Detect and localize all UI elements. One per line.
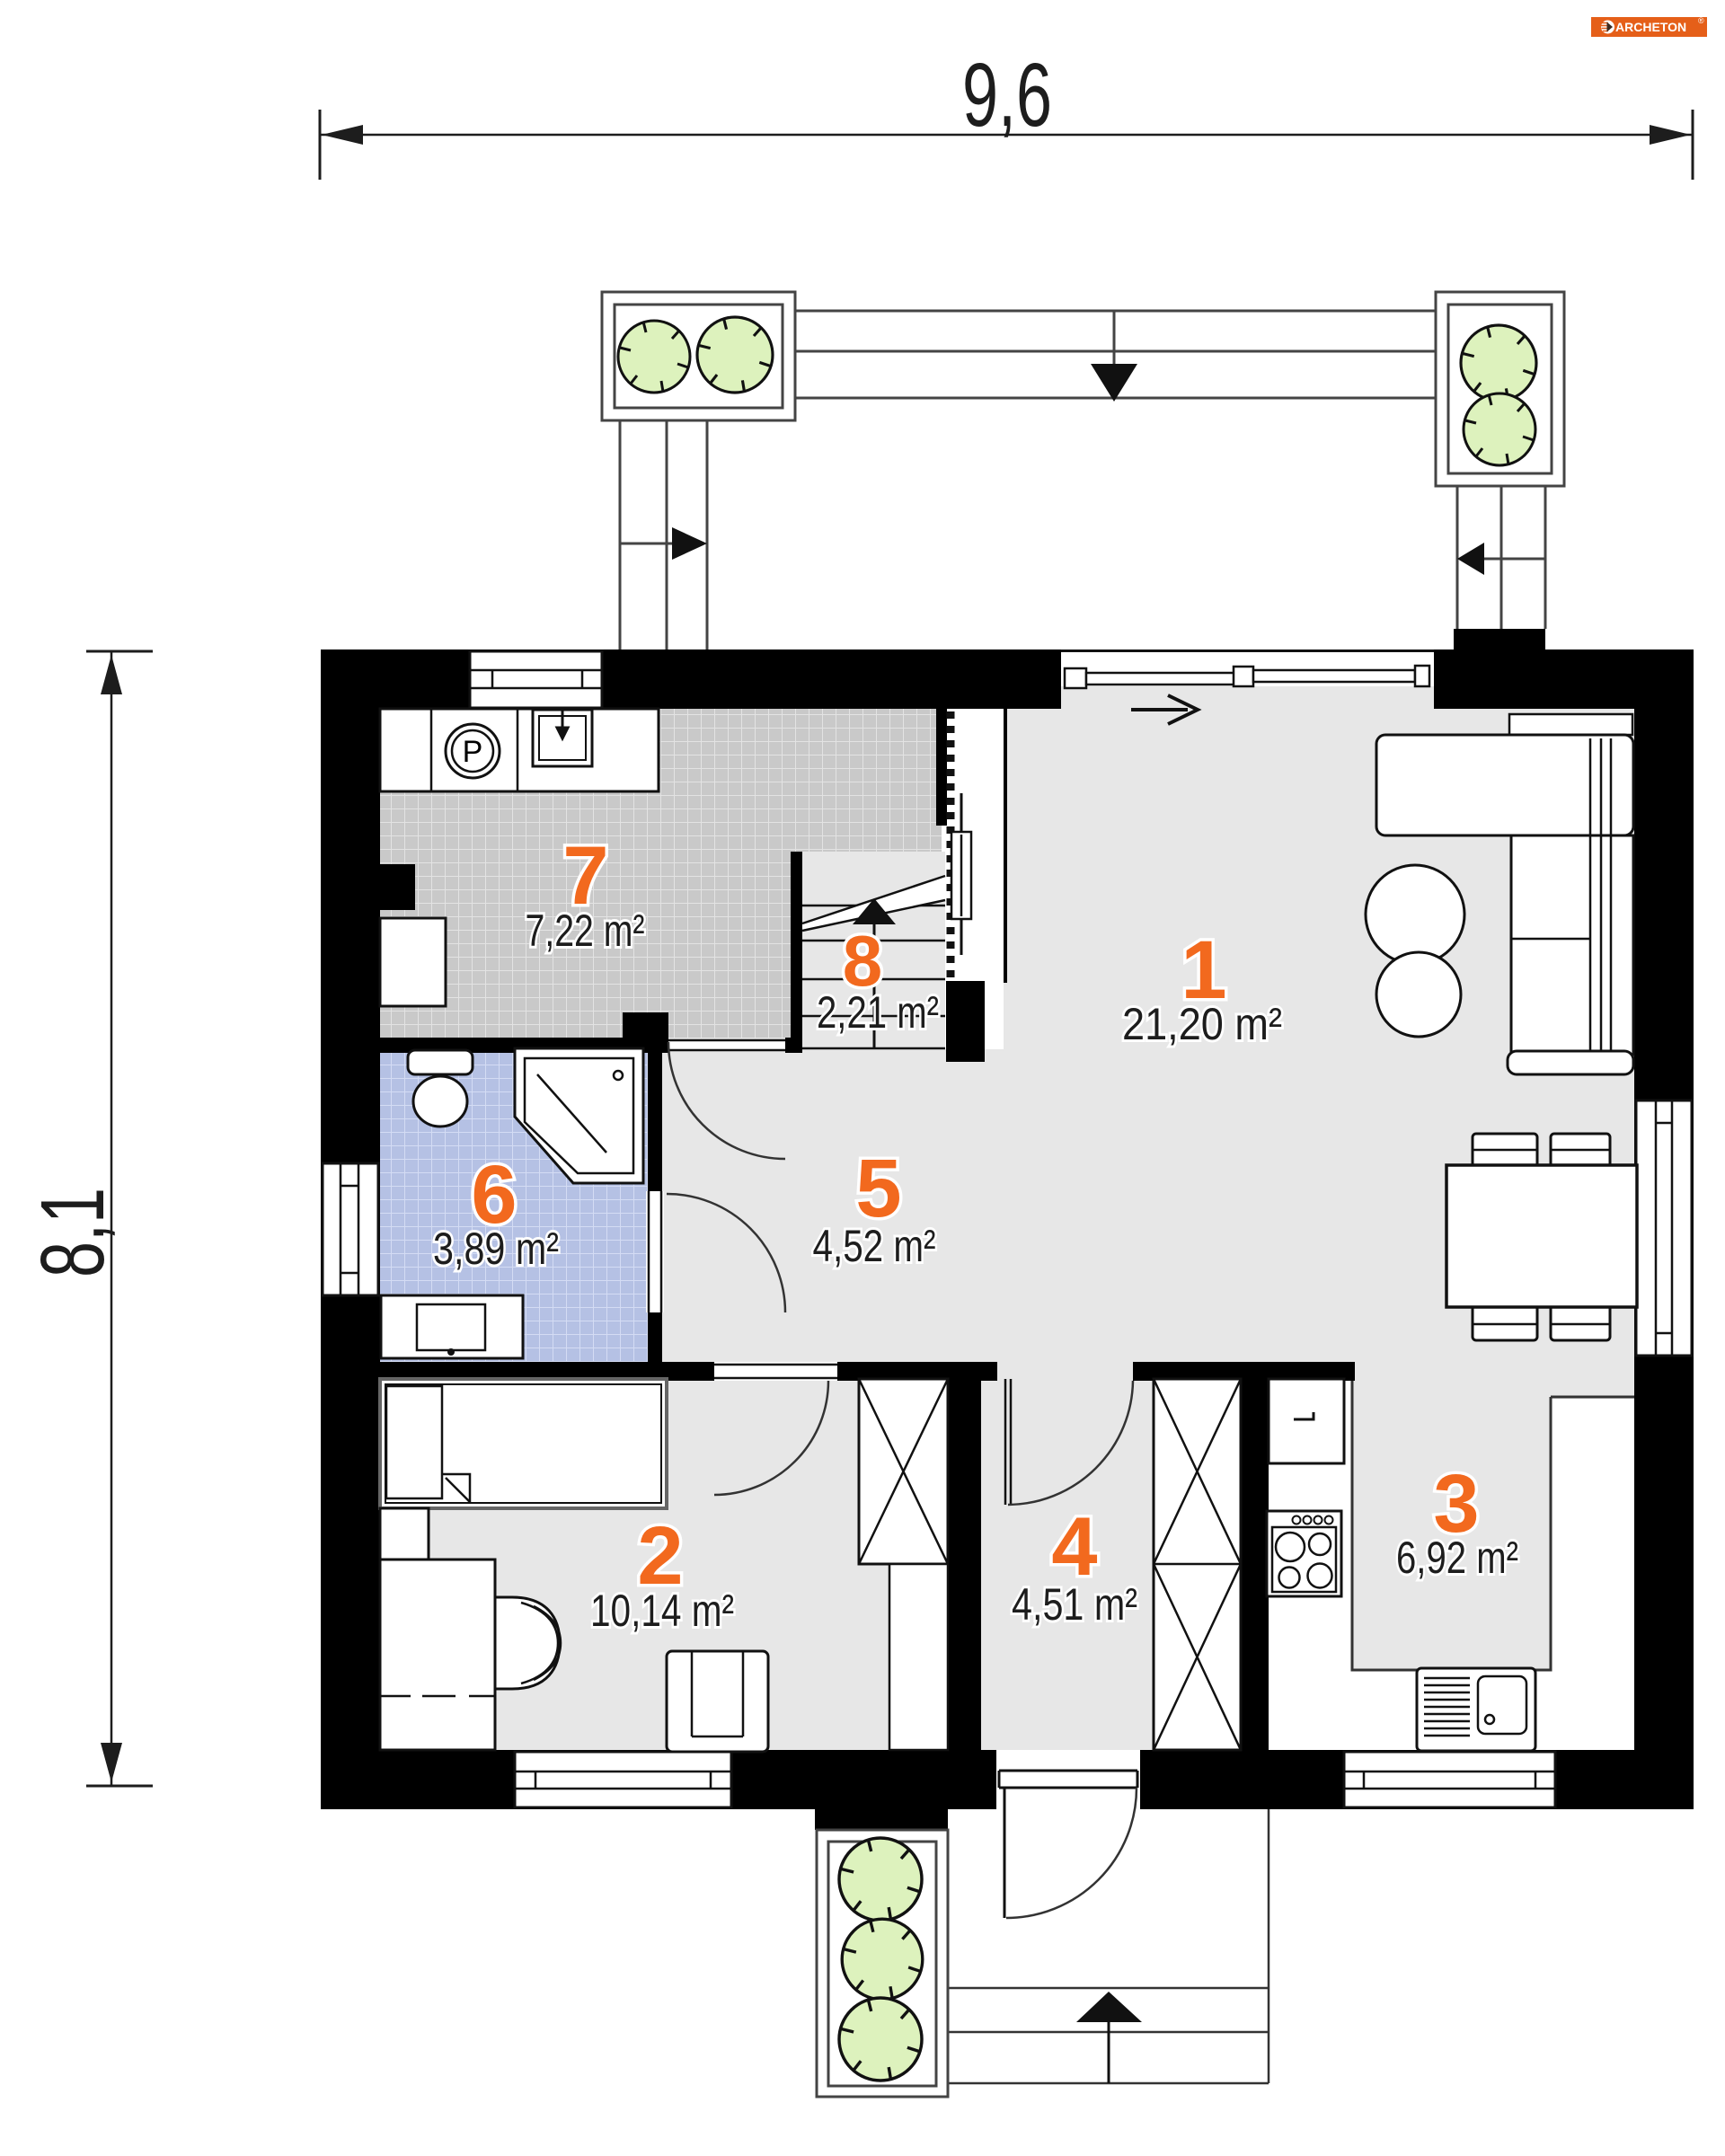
svg-text:P: P <box>463 735 483 769</box>
svg-text:8,1: 8,1 <box>22 1188 123 1277</box>
svg-text:3,89 m²: 3,89 m² <box>433 1224 559 1274</box>
svg-text:4,51 m²: 4,51 m² <box>1012 1579 1137 1630</box>
svg-text:6,92 m²: 6,92 m² <box>1396 1533 1518 1583</box>
svg-text:4,52 m²: 4,52 m² <box>813 1221 936 1271</box>
svg-text:10,14 m²: 10,14 m² <box>590 1586 734 1636</box>
svg-text:®: ® <box>1698 16 1704 25</box>
svg-text:2,21 m²: 2,21 m² <box>817 987 939 1038</box>
svg-text:9,6: 9,6 <box>962 45 1052 146</box>
svg-text:21,20 m²: 21,20 m² <box>1122 999 1282 1049</box>
svg-text:ARCHETON: ARCHETON <box>1615 20 1686 34</box>
svg-text:7,22 m²: 7,22 m² <box>526 906 645 956</box>
